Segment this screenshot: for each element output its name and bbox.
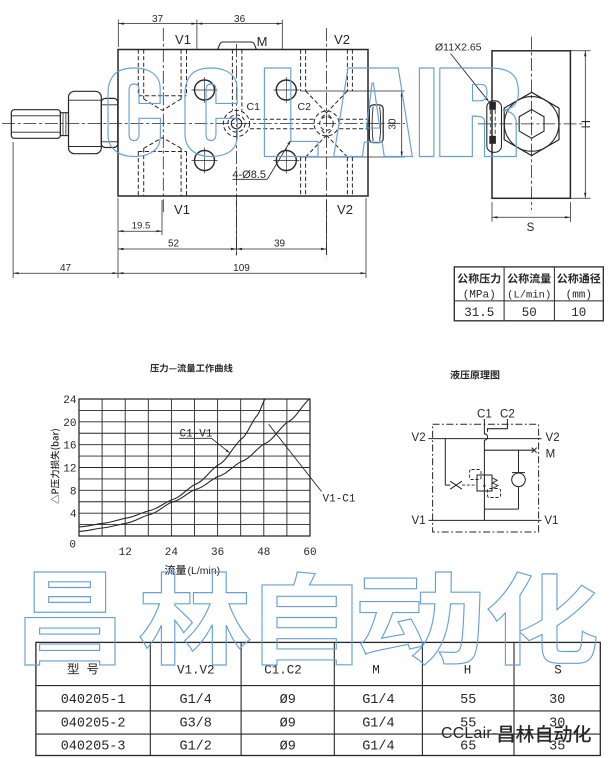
svg-text:47: 47	[60, 263, 72, 274]
svg-text:Ø11X2.65: Ø11X2.65	[435, 42, 482, 54]
svg-text:G1/4: G1/4	[179, 693, 211, 708]
svg-text:040205-1: 040205-1	[61, 693, 126, 708]
svg-text:Ø9: Ø9	[280, 717, 296, 732]
svg-text:50: 50	[522, 306, 537, 320]
svg-text:30: 30	[549, 717, 565, 732]
svg-text:30: 30	[388, 118, 399, 130]
svg-text:M: M	[372, 664, 380, 678]
svg-text:109: 109	[233, 263, 250, 274]
svg-text:24: 24	[165, 547, 179, 559]
svg-text:H: H	[581, 120, 593, 128]
svg-text:(L/min): (L/min)	[188, 565, 221, 577]
svg-text:12: 12	[119, 547, 132, 559]
svg-text:G1/2: G1/2	[179, 740, 211, 755]
svg-text:(L/min): (L/min)	[507, 290, 551, 302]
svg-text:M: M	[257, 34, 268, 49]
svg-text:C1: C1	[247, 101, 261, 113]
svg-text:C2: C2	[298, 101, 312, 113]
svg-text:(MPa): (MPa)	[463, 290, 496, 302]
svg-text:V1: V1	[174, 202, 190, 217]
svg-text:G1/4: G1/4	[362, 693, 394, 708]
svg-text:(mm): (mm)	[566, 290, 592, 302]
svg-text:Ø9: Ø9	[280, 740, 296, 755]
svg-text:24: 24	[63, 395, 77, 407]
svg-text:040205-3: 040205-3	[61, 740, 126, 755]
svg-text:48: 48	[257, 547, 270, 559]
svg-text:C2: C2	[500, 408, 515, 420]
svg-text:Ø9: Ø9	[280, 693, 296, 708]
svg-text:G1/4: G1/4	[362, 717, 394, 732]
svg-text:52: 52	[168, 239, 180, 250]
svg-text:S: S	[554, 664, 562, 678]
svg-text:V1: V1	[544, 515, 558, 527]
svg-text:31.5: 31.5	[464, 306, 494, 320]
svg-text:V1-C1: V1-C1	[323, 494, 356, 506]
svg-text:V2: V2	[337, 202, 353, 217]
svg-text:V1.V2: V1.V2	[177, 664, 215, 678]
svg-text:V1: V1	[175, 32, 191, 47]
svg-text:30: 30	[549, 693, 565, 708]
svg-text:36: 36	[234, 14, 246, 25]
svg-text:0: 0	[69, 540, 76, 552]
svg-text:H: H	[464, 664, 472, 678]
svg-text:V2: V2	[546, 432, 560, 444]
svg-text:G1/4: G1/4	[362, 740, 394, 755]
svg-text:S: S	[527, 222, 535, 234]
svg-text:37: 37	[152, 14, 164, 25]
svg-text:16: 16	[63, 441, 76, 453]
svg-text:V2: V2	[334, 32, 350, 47]
svg-text:V2: V2	[412, 432, 426, 444]
svg-text:8: 8	[70, 486, 77, 498]
svg-text:10: 10	[571, 306, 586, 320]
svg-text:C1.C2: C1.C2	[264, 664, 302, 678]
svg-text:19.5: 19.5	[132, 221, 151, 232]
svg-text:V1: V1	[412, 515, 426, 527]
svg-text:CCLair-: CCLair-	[441, 725, 498, 742]
svg-text:60: 60	[303, 547, 316, 559]
svg-text:C1: C1	[477, 408, 492, 420]
svg-text:39: 39	[274, 239, 286, 250]
svg-text:G3/8: G3/8	[179, 717, 211, 732]
svg-text:12: 12	[63, 464, 76, 476]
svg-text:36: 36	[211, 547, 224, 559]
svg-text:55: 55	[460, 693, 476, 708]
svg-text:M: M	[546, 449, 556, 461]
svg-text:20: 20	[63, 418, 76, 430]
svg-text:4: 4	[70, 509, 77, 521]
svg-text:040205-2: 040205-2	[61, 717, 126, 732]
